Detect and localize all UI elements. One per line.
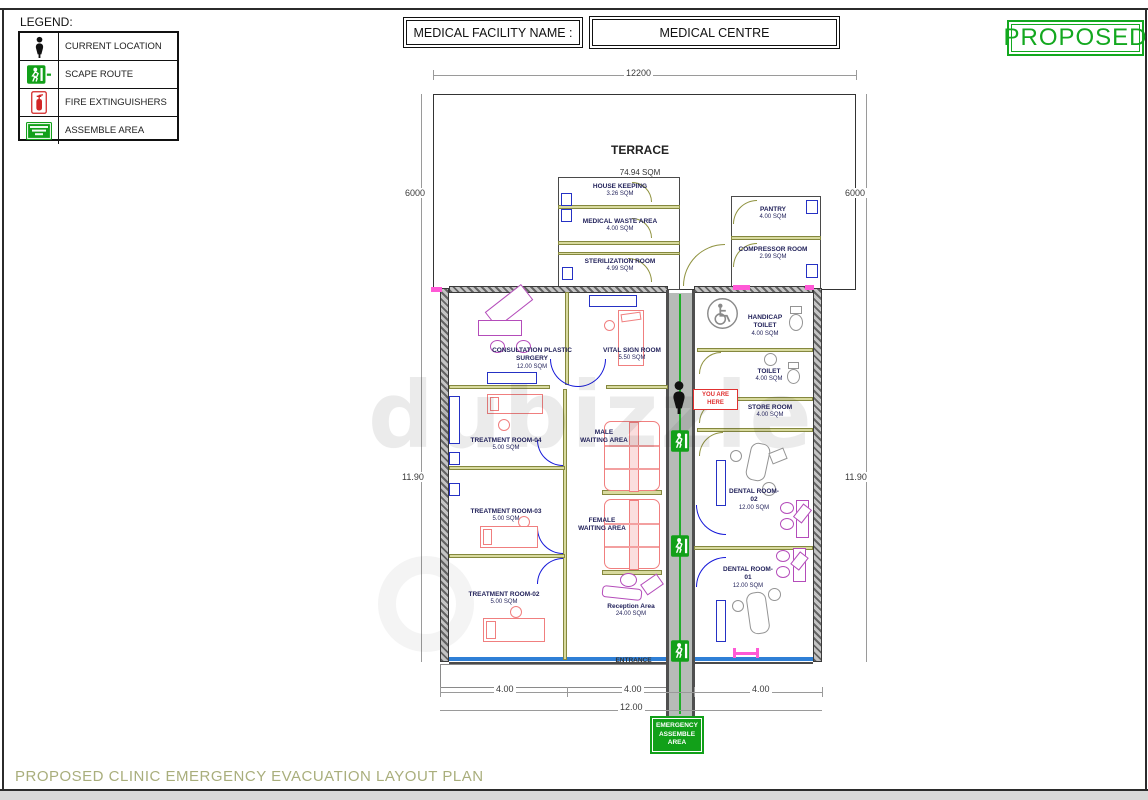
room-label-sterilization: STERILIZATION ROOM 4.99 SQM — [578, 258, 662, 274]
room-name: MEDICAL WASTE AREA — [578, 218, 662, 226]
wall-marker — [431, 287, 442, 292]
door-tag — [487, 372, 537, 384]
room-label-pantry: PANTRY 4.00 SQM — [742, 206, 804, 222]
legend-row-current-location: CURRENT LOCATION — [20, 33, 177, 61]
room-name: TREATMENT ROOM-02 — [460, 591, 548, 599]
legend-table: CURRENT LOCATION SCAPE ROUTE FIRE EXTING… — [18, 31, 179, 141]
room-name: TOILET — [748, 368, 790, 376]
dim-right-upper: 6000 — [843, 188, 867, 198]
wall-hatched-right — [813, 288, 822, 662]
room-label-house-keeping: HOUSE KEEPING 3.26 SQM — [580, 183, 660, 199]
dim-bottom-left: 4.00 — [494, 684, 516, 694]
room-area: 74.94 SQM — [620, 168, 660, 177]
room-area: 4.99 SQM — [578, 266, 662, 274]
legend-label: CURRENT LOCATION — [59, 33, 177, 60]
room-name: HANDICAP — [742, 314, 788, 322]
room-area: 5.00 SQM — [460, 599, 548, 607]
escape-route-icon — [20, 61, 59, 88]
room-label-terrace: TERRACE 74.94 SQM — [570, 140, 710, 182]
room-area: 4.00 SQM — [744, 412, 796, 420]
sofa-divider — [605, 546, 659, 548]
legend-label: FIRE EXTINGUISHERS — [59, 89, 177, 116]
room-area: 4.00 SQM — [748, 376, 790, 384]
dim-tick — [856, 70, 857, 80]
room-area: 4.00 SQM — [742, 214, 804, 222]
room-label-compressor: COMPRESSOR ROOM 2.99 SQM — [738, 246, 808, 262]
wall-segment — [558, 241, 680, 245]
room-name: ENTRANCE — [606, 657, 661, 665]
assemble-area-sign: EMERGENCY ASSEMBLE AREA — [650, 716, 704, 754]
room-label-treatment2: TREATMENT ROOM-02 5.00 SQM — [460, 591, 548, 607]
room-name: WAITING AREA — [578, 437, 630, 445]
room-label-medical-waste: MEDICAL WASTE AREA 4.00 SQM — [578, 218, 662, 234]
door-arc — [537, 528, 563, 554]
wall-hatched-top — [449, 286, 668, 293]
dim-tick — [822, 687, 823, 697]
room-name: TOILET — [742, 322, 788, 330]
facility-name: MEDICAL CENTRE — [592, 19, 837, 46]
room-area: 12.00 SQM — [720, 583, 776, 591]
frame-right-line — [1145, 8, 1147, 790]
dim-left-upper: 6000 — [403, 188, 427, 198]
chair — [776, 550, 790, 562]
drawing-title: PROPOSED CLINIC EMERGENCY EVACUATION LAY… — [15, 768, 484, 785]
dim-top-width: 12200 — [624, 68, 653, 78]
pillow — [483, 529, 492, 545]
waiting-sofa-female — [604, 499, 660, 569]
wall-segment — [558, 205, 680, 209]
room-name: HOUSE KEEPING — [580, 183, 660, 191]
sofa-console — [629, 500, 639, 570]
escape-route-icon — [671, 430, 689, 457]
room-label-treatment4: TREATMENT ROOM-04 5.00 SQM — [462, 437, 550, 453]
door-arc — [696, 505, 726, 535]
room-area: 5.00 SQM — [462, 516, 550, 524]
room-label-dental1: DENTAL ROOM-01 12.00 SQM — [720, 566, 776, 591]
room-label-reception: Reception Area 24.00 SQM — [596, 603, 666, 619]
legend-label: SCAPE ROUTE — [59, 61, 177, 88]
room-label-handicap-toilet: HANDICAP TOILET 4.00 SQM — [742, 314, 788, 339]
dim-tick — [433, 70, 434, 80]
frame-left-line — [2, 8, 4, 790]
status-badge: PROPOSED — [1007, 20, 1144, 56]
room-name: TREATMENT ROOM-03 — [462, 508, 550, 516]
door-tag — [716, 460, 726, 506]
frame-top-line — [0, 8, 1148, 10]
dim-bottom-total: 12.00 — [618, 702, 645, 712]
dental-stool — [732, 600, 744, 612]
room-name: TERRACE — [611, 143, 669, 157]
door-tag — [716, 600, 726, 642]
wall-sign — [449, 483, 460, 496]
room-label-treatment3: TREATMENT ROOM-03 5.00 SQM — [462, 508, 550, 524]
door-tag — [589, 295, 637, 307]
consultation-table — [478, 320, 522, 336]
legend-title: LEGEND: — [20, 15, 73, 29]
escape-route-icon — [671, 640, 689, 667]
wall-segment — [558, 252, 680, 255]
wall-segment — [697, 348, 813, 352]
toilet-fixture — [789, 314, 803, 331]
room-label-female-waiting: FEMALE WAITING AREA — [576, 517, 628, 534]
dim-tick — [694, 687, 695, 697]
corridor-wall — [692, 290, 695, 716]
sheet-margin — [0, 791, 1148, 800]
wall-sign — [806, 264, 818, 278]
current-location-icon — [20, 33, 59, 60]
facility-label-box: MEDICAL FACILITY NAME : — [403, 17, 583, 48]
assemble-area-text: EMERGENCY ASSEMBLE AREA — [652, 718, 702, 752]
room-name: DENTAL ROOM-02 — [726, 488, 782, 505]
fixture-marker — [756, 648, 759, 658]
entrance-canopy — [440, 664, 690, 688]
wall-hatched-top — [694, 286, 813, 293]
reception-chair — [620, 573, 637, 587]
room-name: DENTAL ROOM-01 — [720, 566, 776, 583]
you-are-here-label: YOU ARE HERE — [693, 389, 738, 410]
wall-sign — [561, 209, 572, 222]
room-area: 4.00 SQM — [742, 331, 788, 339]
legend-label: ASSEMBLE AREA — [59, 117, 177, 144]
wall-segment — [449, 554, 565, 558]
chair — [780, 518, 794, 530]
room-label-store: STORE ROOM 4.00 SQM — [744, 404, 796, 420]
legend-row-escape-route: SCAPE ROUTE — [20, 61, 177, 89]
room-name: TREATMENT ROOM-04 — [462, 437, 550, 445]
room-area: 12.00 SQM — [472, 364, 592, 372]
drawing-sheet: dubizzle LEGEND: CURRENT LOCATION SCAPE … — [0, 0, 1148, 800]
current-location-icon — [669, 380, 689, 419]
room-label-male-waiting: MALE WAITING AREA — [578, 429, 630, 446]
stool — [510, 606, 522, 618]
wall-sign — [561, 193, 572, 206]
status-text: PROPOSED — [1011, 24, 1140, 52]
wall-segment — [731, 236, 821, 240]
room-label-toilet: TOILET 4.00 SQM — [748, 368, 790, 384]
legend-row-assemble-area: ASSEMBLE AREA — [20, 117, 177, 144]
dim-bottom-right: 4.00 — [750, 684, 772, 694]
assemble-area-icon — [20, 117, 59, 144]
room-area: 3.26 SQM — [580, 191, 660, 199]
room-name: STORE ROOM — [744, 404, 796, 412]
door-arc — [537, 558, 563, 584]
wall-sign — [806, 200, 818, 214]
door-tag — [449, 396, 460, 444]
room-label-dental2: DENTAL ROOM-02 12.00 SQM — [726, 488, 782, 513]
dim-right-lower: 11.90 — [843, 472, 869, 482]
pillow — [486, 621, 496, 639]
legend-row-fire-extinguishers: FIRE EXTINGUISHERS — [20, 89, 177, 117]
room-name: MALE — [578, 429, 630, 437]
room-area: 5.50 SQM — [600, 355, 664, 363]
room-name: VITAL SIGN ROOM — [600, 347, 664, 355]
room-area: 12.00 SQM — [726, 505, 782, 513]
escape-route-icon — [671, 535, 689, 562]
reception-desk — [601, 585, 642, 601]
room-name: Reception Area — [596, 603, 666, 611]
room-name: STERILIZATION ROOM — [578, 258, 662, 266]
wall-marker — [733, 285, 750, 290]
dim-left-lower: 11.90 — [400, 472, 426, 482]
facility-label: MEDICAL FACILITY NAME : — [406, 20, 580, 45]
wall-marker — [805, 285, 814, 290]
facility-name-box: MEDICAL CENTRE — [589, 16, 840, 49]
room-name: SURGERY — [472, 355, 592, 363]
room-area: 2.99 SQM — [738, 254, 808, 262]
corridor-wall — [666, 290, 669, 716]
reception-desk — [640, 573, 664, 595]
room-name: COMPRESSOR ROOM — [738, 246, 808, 254]
room-area: 4.00 SQM — [578, 226, 662, 234]
room-name: WAITING AREA — [576, 525, 628, 533]
wall-sign — [562, 267, 573, 280]
room-area: 5.00 SQM — [462, 445, 550, 453]
wall-sign — [449, 452, 460, 465]
chair — [776, 566, 790, 578]
room-label-entrance: ENTRANCE — [606, 657, 661, 665]
dim-tick — [440, 687, 441, 697]
fire-extinguisher-icon — [20, 89, 59, 116]
room-label-consultation: CONSULTATION PLASTIC SURGERY 12.00 SQM — [472, 347, 592, 372]
room-name: PANTRY — [742, 206, 804, 214]
stool — [604, 320, 615, 331]
dim-bottom-mid: 4.00 — [622, 684, 644, 694]
dim-tick — [567, 687, 568, 697]
wheelchair-icon — [706, 297, 739, 335]
toilet-fixture — [790, 306, 802, 314]
room-area: 24.00 SQM — [596, 611, 666, 619]
dental-chair — [745, 591, 771, 635]
chair — [780, 502, 794, 514]
room-name: CONSULTATION PLASTIC — [472, 347, 592, 355]
room-label-vital-sign: VITAL SIGN ROOM 5.50 SQM — [600, 347, 664, 363]
room-name: FEMALE — [576, 517, 628, 525]
